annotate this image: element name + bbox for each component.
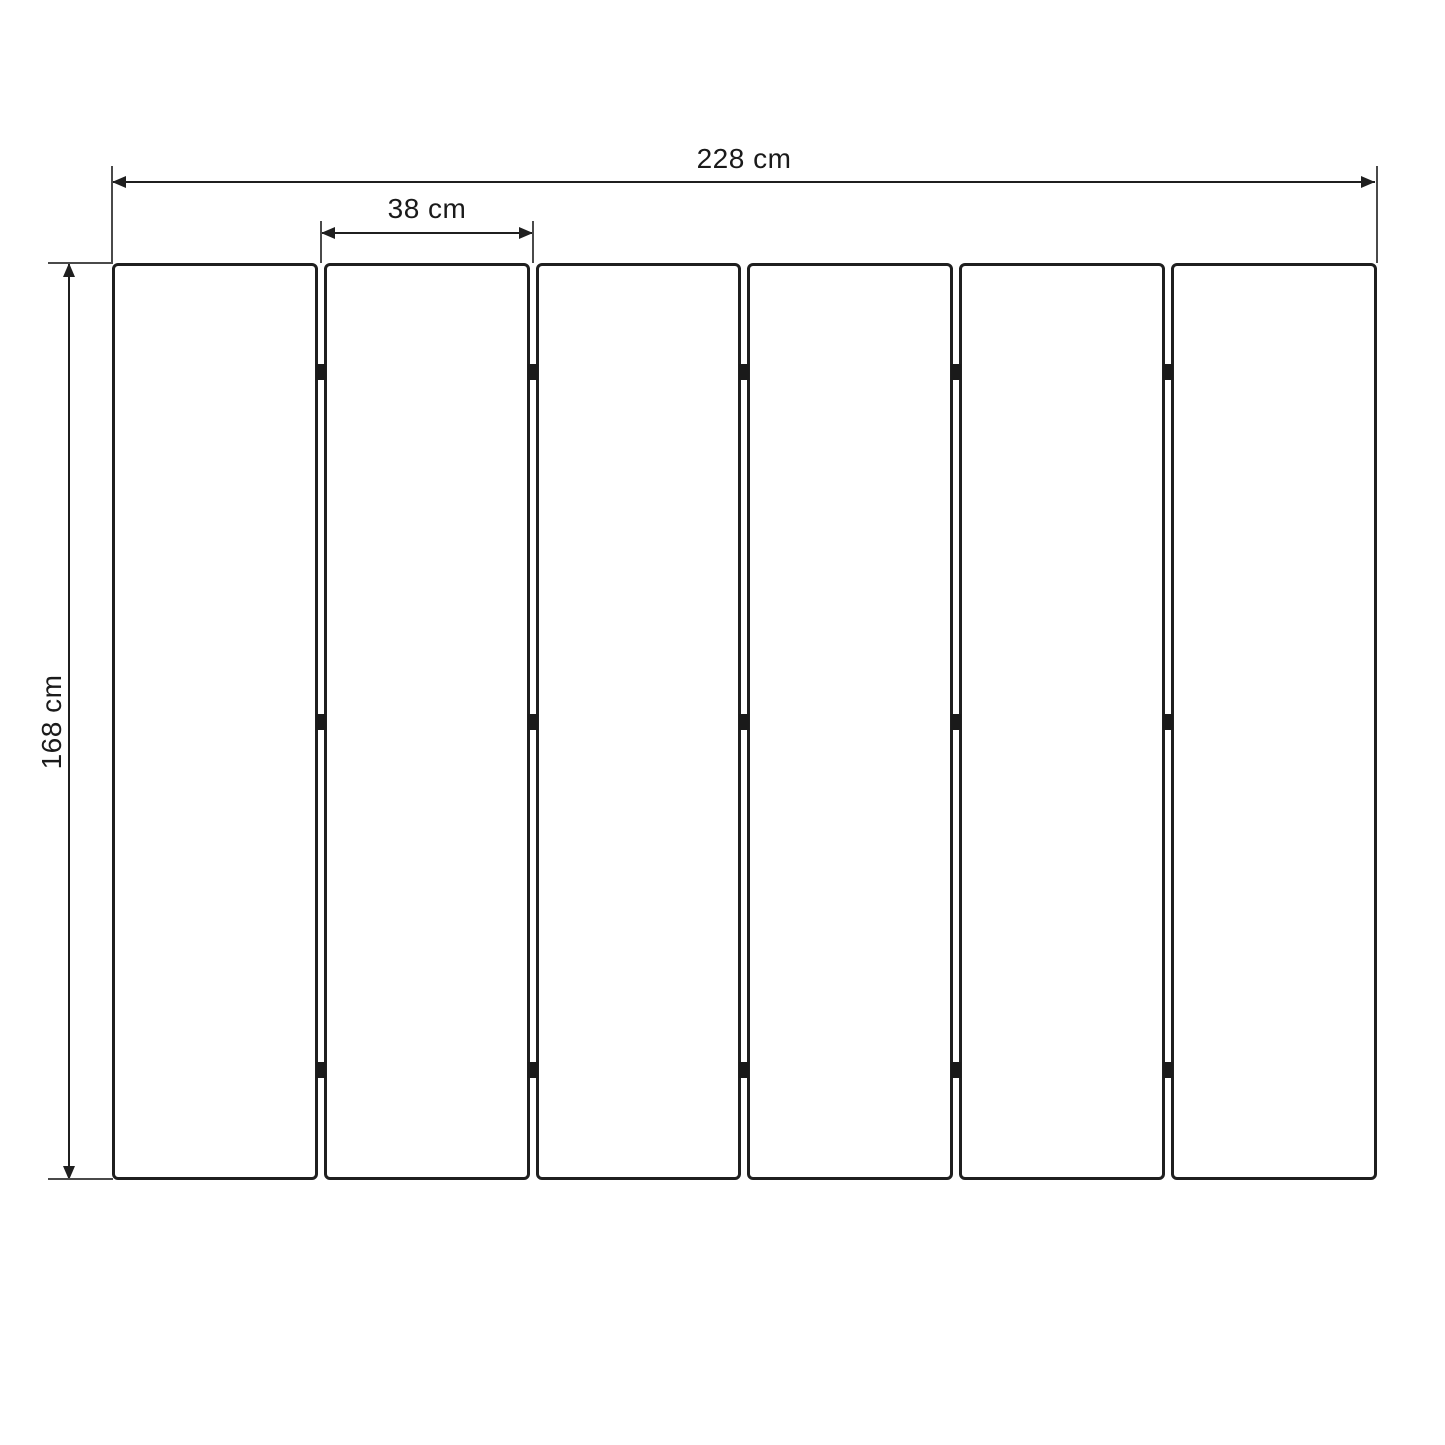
arrowhead-right-icon [1361, 176, 1375, 188]
hinge-mark [528, 1062, 538, 1078]
hinge-mark [739, 714, 749, 730]
hinge-mark [739, 364, 749, 380]
panel [536, 263, 742, 1180]
arrowhead-left-icon [321, 227, 335, 239]
panel [112, 263, 318, 1180]
total-width-dimension-line [112, 181, 1375, 183]
hinge-mark [1163, 1062, 1173, 1078]
hinge-mark [316, 714, 326, 730]
hinge-mark [316, 364, 326, 380]
hinge-mark [951, 714, 961, 730]
hinge-mark [1163, 714, 1173, 730]
arrowhead-right-icon [519, 227, 533, 239]
extension-line [111, 166, 113, 263]
panel-width-dimension-line [321, 232, 533, 234]
hinge-mark [1163, 364, 1173, 380]
height-dimension-line [68, 263, 70, 1180]
panel-dimension-diagram: 228 cm 38 cm 168 cm [0, 0, 1445, 1445]
hinge-mark [316, 1062, 326, 1078]
hinge-mark [951, 1062, 961, 1078]
panel [959, 263, 1165, 1180]
hinge-mark [739, 1062, 749, 1078]
extension-line [48, 262, 113, 264]
panel-row [112, 263, 1377, 1180]
extension-line [1376, 166, 1378, 263]
extension-line [532, 221, 534, 263]
total-width-label: 228 cm [697, 143, 792, 175]
arrowhead-left-icon [112, 176, 126, 188]
arrowhead-up-icon [63, 263, 75, 277]
extension-line [48, 1178, 113, 1180]
hinge-mark [951, 364, 961, 380]
hinge-mark [528, 364, 538, 380]
hinge-mark [528, 714, 538, 730]
panel [747, 263, 953, 1180]
panel [324, 263, 530, 1180]
panel [1171, 263, 1377, 1180]
extension-line [320, 221, 322, 263]
panel-width-label: 38 cm [388, 193, 467, 225]
height-label: 168 cm [36, 675, 68, 770]
